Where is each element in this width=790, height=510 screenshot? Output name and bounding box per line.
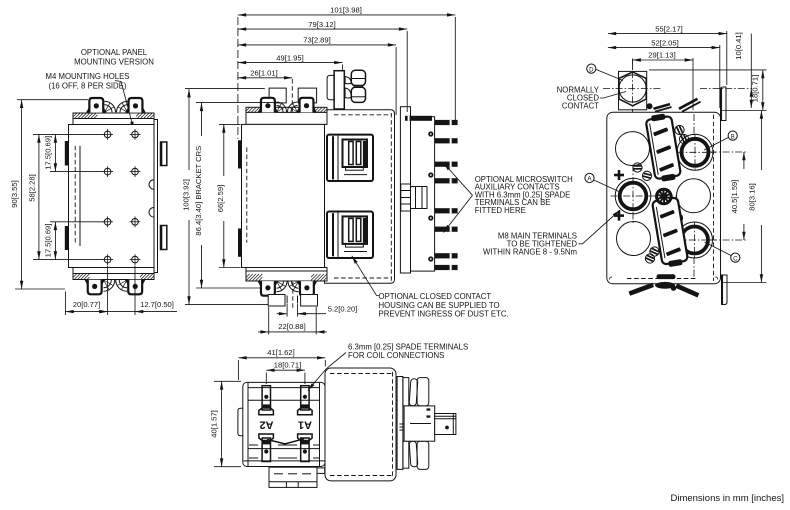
svg-text:A2: A2 (259, 419, 273, 431)
svg-text:80[3.16]: 80[3.16] (748, 183, 757, 210)
svg-text:100[3.92]: 100[3.92] (181, 179, 190, 211)
svg-text:73[2.89]: 73[2.89] (303, 36, 330, 45)
svg-text:M4 MOUNTING HOLES: M4 MOUNTING HOLES (45, 72, 129, 81)
svg-text:17.5[0.69]: 17.5[0.69] (44, 224, 53, 258)
svg-text:41[1.62]: 41[1.62] (267, 348, 294, 357)
svg-text:FOR COIL CONNECTIONS: FOR COIL CONNECTIONS (348, 351, 444, 360)
svg-text:MOUNTING VERSION: MOUNTING VERSION (74, 58, 154, 67)
svg-text:FITTED HERE: FITTED HERE (475, 206, 526, 215)
svg-text:17.5[0.69]: 17.5[0.69] (44, 136, 53, 170)
svg-text:PREVENT INGRESS OF DUST ETC.: PREVENT INGRESS OF DUST ETC. (379, 310, 509, 319)
svg-text:OPTIONAL PANEL: OPTIONAL PANEL (81, 48, 148, 57)
svg-text:WITHIN RANGE 8 - 9.5Nm: WITHIN RANGE 8 - 9.5Nm (483, 247, 577, 256)
svg-text:10[0.41]: 10[0.41] (734, 32, 743, 59)
svg-text:12.7[0.50]: 12.7[0.50] (140, 300, 174, 309)
svg-text:52[2.05]: 52[2.05] (651, 38, 678, 47)
svg-text:B: B (731, 133, 735, 140)
svg-text:5.2[0.20]: 5.2[0.20] (328, 305, 358, 314)
svg-text:40.5[1.59]: 40.5[1.59] (730, 180, 739, 214)
svg-text:49[1.95]: 49[1.95] (276, 53, 303, 62)
svg-text:40[1.57]: 40[1.57] (209, 410, 218, 437)
svg-text:C: C (733, 255, 738, 262)
svg-text:A1: A1 (298, 419, 312, 431)
svg-text:55[2.17]: 55[2.17] (655, 24, 682, 33)
svg-text:CONTACT: CONTACT (562, 102, 599, 111)
svg-text:90[3.55]: 90[3.55] (10, 180, 19, 207)
svg-text:D: D (589, 66, 594, 73)
svg-text:HOUSING CAN BE SUPPLIED TO: HOUSING CAN BE SUPPLIED TO (379, 301, 500, 310)
svg-text:OPTIONAL CLOSED CONTACT: OPTIONAL CLOSED CONTACT (379, 292, 492, 301)
svg-text:29[1.13]: 29[1.13] (648, 51, 675, 60)
svg-text:101[3.98]: 101[3.98] (330, 6, 362, 15)
svg-text:79[3.12]: 79[3.12] (308, 20, 335, 29)
svg-text:58[2.28]: 58[2.28] (28, 174, 37, 201)
svg-text:18[0.71]: 18[0.71] (751, 75, 760, 102)
svg-text:26[1.01]: 26[1.01] (250, 69, 277, 78)
svg-text:86.4[3.40] BRACKET CRS: 86.4[3.40] BRACKET CRS (194, 146, 203, 236)
svg-text:22[0.88]: 22[0.88] (278, 322, 305, 331)
svg-text:18[0.71]: 18[0.71] (274, 361, 301, 370)
svg-text:(16 OFF, 8 PER SIDE): (16 OFF, 8 PER SIDE) (49, 82, 127, 91)
svg-text:Dimensions in mm [inches]: Dimensions in mm [inches] (670, 493, 784, 504)
svg-text:66[2.59]: 66[2.59] (216, 185, 225, 212)
svg-text:20[0.77]: 20[0.77] (73, 300, 100, 309)
